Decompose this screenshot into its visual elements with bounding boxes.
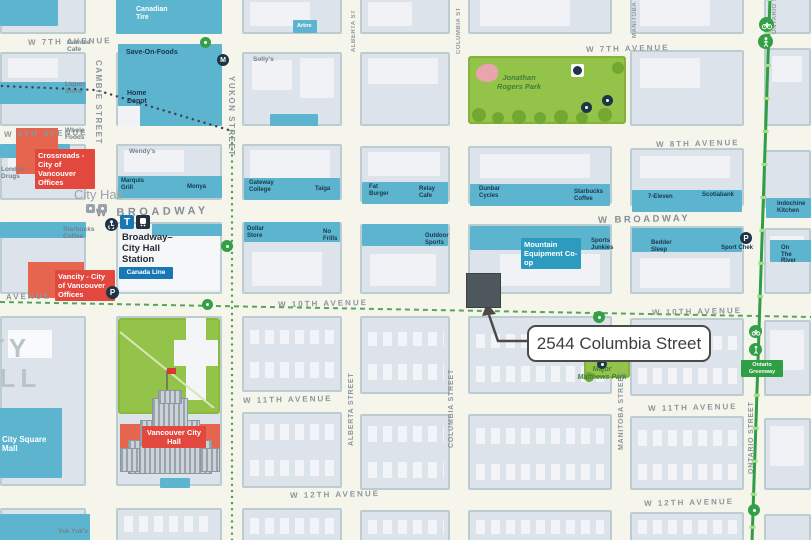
avenue-label: W 11TH AVENUE bbox=[648, 402, 738, 413]
cambie-cafe-label: Cambie Cafe bbox=[67, 39, 93, 54]
dunbar-cycles-label: Dunbar Cycles bbox=[479, 186, 507, 199]
building-row bbox=[476, 428, 604, 444]
street-label-columbia-top: COLUMBIA ST bbox=[456, 0, 462, 54]
building-row bbox=[638, 520, 738, 534]
parking-icon: P bbox=[106, 286, 119, 299]
district-label-line: HALL bbox=[0, 364, 24, 394]
station-name-line: Station bbox=[122, 255, 192, 266]
building bbox=[252, 60, 292, 90]
wendys-label: Wendy's bbox=[129, 148, 155, 155]
avenue-label: W 12TH AVENUE bbox=[644, 497, 734, 508]
fat-burger-label: Fat Burger bbox=[369, 184, 391, 197]
city-block bbox=[360, 316, 450, 394]
crossroads-label: Crossroads - City of Vancouver Offices bbox=[35, 149, 95, 189]
ontario-greenway-badge: Ontario Greenway bbox=[741, 360, 783, 377]
starbucks-coffee-label: Starbucks Coffee bbox=[574, 189, 608, 202]
icon-dot bbox=[101, 207, 104, 210]
building-row bbox=[250, 424, 335, 440]
commercial-building bbox=[160, 478, 190, 488]
bike-route-icon bbox=[759, 17, 774, 32]
building bbox=[370, 254, 436, 286]
avenue-label: W BROADWAY bbox=[96, 205, 209, 220]
picnic-icon bbox=[602, 95, 613, 106]
street-label-columbia: COLUMBIA STREET bbox=[448, 356, 455, 448]
address-callout: 2544 Columbia Street bbox=[527, 325, 711, 362]
tree bbox=[492, 112, 504, 124]
icon-dot bbox=[601, 363, 604, 366]
building bbox=[480, 154, 590, 178]
route-marker bbox=[200, 37, 211, 48]
parking-icon: P bbox=[740, 232, 752, 244]
building bbox=[250, 150, 330, 178]
building-row bbox=[250, 518, 335, 534]
jonathan-rogers-park-label: Jonathan Rogers Park bbox=[489, 74, 549, 92]
building bbox=[772, 56, 802, 82]
canada-line-badge: Canada Line bbox=[119, 267, 173, 279]
on-the-river-label: On The River bbox=[781, 245, 801, 265]
sports-junkies-label: Sports Junkies bbox=[591, 238, 615, 251]
commercial-building bbox=[270, 114, 318, 126]
relay-cafe-label: Relay Cafe bbox=[419, 186, 441, 199]
marquis-grill-label: Marquis Grill bbox=[121, 178, 149, 191]
tree bbox=[612, 62, 624, 74]
route-marker bbox=[593, 311, 605, 323]
avenue-label: W 7TH AVENUE bbox=[586, 43, 670, 54]
icon-dot bbox=[606, 99, 609, 102]
avenue-label: W BROADWAY bbox=[598, 213, 690, 226]
outdoor-sports-label: Outdoor Sports bbox=[425, 233, 453, 246]
accessible-icon bbox=[105, 218, 118, 231]
building bbox=[368, 58, 438, 84]
taiga-label: Taiga bbox=[315, 186, 330, 193]
building bbox=[640, 0, 710, 26]
icon-dot bbox=[226, 245, 229, 248]
city-hall-wing bbox=[120, 448, 140, 472]
building bbox=[640, 258, 730, 288]
building-row bbox=[476, 520, 604, 534]
icon-dot bbox=[89, 207, 92, 210]
building-row bbox=[250, 362, 335, 378]
avenue-label: AVENUE bbox=[6, 291, 51, 301]
building-row bbox=[368, 426, 444, 442]
icon-dot bbox=[585, 106, 588, 109]
building-row bbox=[638, 368, 738, 384]
tree bbox=[554, 110, 568, 124]
elevator-icon bbox=[98, 204, 107, 213]
street-label-ontario: ONTARIO STREET bbox=[748, 386, 755, 474]
building-row bbox=[638, 464, 738, 480]
route-marker bbox=[748, 504, 760, 516]
washroom-icon-circle bbox=[573, 66, 582, 75]
avenue-label: W 11TH AVENUE bbox=[243, 394, 333, 405]
indochine-kitchen-label: Indochine Kitchen bbox=[777, 201, 809, 214]
district-label-line: CITY bbox=[0, 334, 24, 364]
avenue-label: W 12TH AVENUE bbox=[290, 489, 380, 500]
train-icon bbox=[136, 215, 150, 229]
commercial-building bbox=[0, 0, 58, 26]
building bbox=[252, 252, 322, 286]
transit-stop-icon: M bbox=[217, 54, 229, 66]
avenue-label: W 10TH AVENUE bbox=[652, 306, 742, 317]
building bbox=[368, 2, 412, 26]
route-marker bbox=[202, 299, 213, 310]
bedder-sleep-label: Bedder Sleep bbox=[651, 240, 675, 253]
sollys-label: Solly's bbox=[253, 56, 274, 63]
city-block bbox=[764, 514, 811, 540]
liquor-store-label: Liquor Store bbox=[65, 81, 91, 96]
building bbox=[118, 106, 140, 126]
seven-eleven-label: 7-Eleven bbox=[648, 194, 673, 201]
vancouver-city-hall-label: Vancouver City Hall bbox=[142, 426, 206, 448]
route-marker bbox=[221, 240, 233, 252]
icon-dot bbox=[598, 316, 601, 319]
city-hall-area-label: City Hall bbox=[74, 188, 122, 203]
building bbox=[300, 58, 334, 98]
dollar-store-label: Dollar Store bbox=[247, 226, 269, 239]
save-on-foods-label: Save-On-Foods bbox=[126, 49, 178, 57]
street-label-ontario-top: ONTARIO ST bbox=[772, 0, 778, 34]
icon-dot bbox=[206, 303, 209, 306]
washroom-icon bbox=[571, 64, 584, 77]
building-row bbox=[250, 330, 335, 344]
info-kiosk-icon bbox=[86, 204, 95, 213]
canadian-tire-label: Canadian Tire bbox=[136, 6, 178, 22]
address-callout-text: 2544 Columbia Street bbox=[537, 334, 701, 354]
street-label-yukon: YUKON STREET bbox=[227, 76, 236, 157]
sport-chek-label: Sport Chek bbox=[721, 245, 753, 252]
building bbox=[640, 156, 730, 178]
avenue-label: W 10TH AVENUE bbox=[278, 298, 368, 309]
building bbox=[770, 426, 804, 466]
city-hall-top bbox=[158, 390, 182, 404]
avenue-label: W 8TH AVENUE bbox=[656, 138, 740, 149]
tree bbox=[472, 108, 486, 122]
scotiabank-label: Scotiabank bbox=[702, 192, 734, 199]
building-row bbox=[638, 430, 738, 446]
tree bbox=[534, 112, 546, 124]
building bbox=[8, 58, 58, 78]
bike-route-icon bbox=[749, 325, 762, 338]
building-row bbox=[368, 364, 444, 380]
icon-dot bbox=[204, 41, 207, 44]
building bbox=[368, 152, 440, 176]
icon-dot bbox=[753, 509, 756, 512]
tree bbox=[512, 110, 526, 124]
london-drugs-label: London Drugs bbox=[1, 166, 29, 181]
building bbox=[640, 58, 700, 88]
skytrain-station-icon: T bbox=[120, 215, 134, 229]
station-name: Broadway– City Hall Station bbox=[122, 233, 192, 266]
tree bbox=[576, 112, 588, 124]
tree bbox=[598, 108, 612, 122]
property-marker-2544 bbox=[466, 273, 501, 308]
city-block bbox=[242, 316, 342, 392]
dog-park-icon bbox=[581, 102, 592, 113]
street-label-alberta-top: ALBERTA ST bbox=[351, 0, 357, 52]
building-row bbox=[476, 464, 604, 480]
arbre-label: Arbre bbox=[297, 23, 312, 29]
street-label-alberta: ALBERTA STREET bbox=[348, 356, 355, 446]
gateway-college-label: Gateway College bbox=[249, 180, 283, 193]
building-row bbox=[368, 520, 444, 534]
mec-label: Mountain Equipment Co-op bbox=[521, 238, 581, 269]
building-row bbox=[250, 460, 335, 476]
yuk-yuks-label: Yuk Yuk's bbox=[58, 528, 88, 535]
no-frills-label: No Frills bbox=[323, 229, 341, 242]
street-label-cambie: CAMBIE STREET bbox=[94, 60, 103, 145]
building bbox=[174, 340, 218, 366]
street-label-manitoba-top: MANITOBA ST bbox=[632, 0, 638, 38]
building-row bbox=[368, 332, 444, 346]
monya-label: Monya bbox=[187, 184, 206, 191]
building bbox=[480, 0, 570, 26]
home-depot-label: Home Depot bbox=[127, 90, 153, 106]
district-label-city-hall: CITY HALL bbox=[0, 334, 24, 394]
pedestrian-icon bbox=[758, 34, 773, 49]
pedestrian-icon bbox=[749, 343, 762, 356]
map-canvas[interactable]: W 7TH AVENUE W 7TH AVENUE W 8TH AVENUE W… bbox=[0, 0, 811, 540]
building-row bbox=[368, 462, 444, 478]
city-hall-wing bbox=[200, 448, 220, 472]
whole-foods-label: Whole Foods bbox=[65, 127, 91, 142]
city-square-mall-label: City Square Mall bbox=[2, 436, 48, 454]
vancity-label: Vancity - City of Vancouver Offices bbox=[55, 270, 115, 301]
building-row bbox=[124, 516, 214, 532]
commercial-building bbox=[0, 514, 90, 540]
starbucks-station-label: Starbucks Coffee bbox=[63, 226, 93, 241]
